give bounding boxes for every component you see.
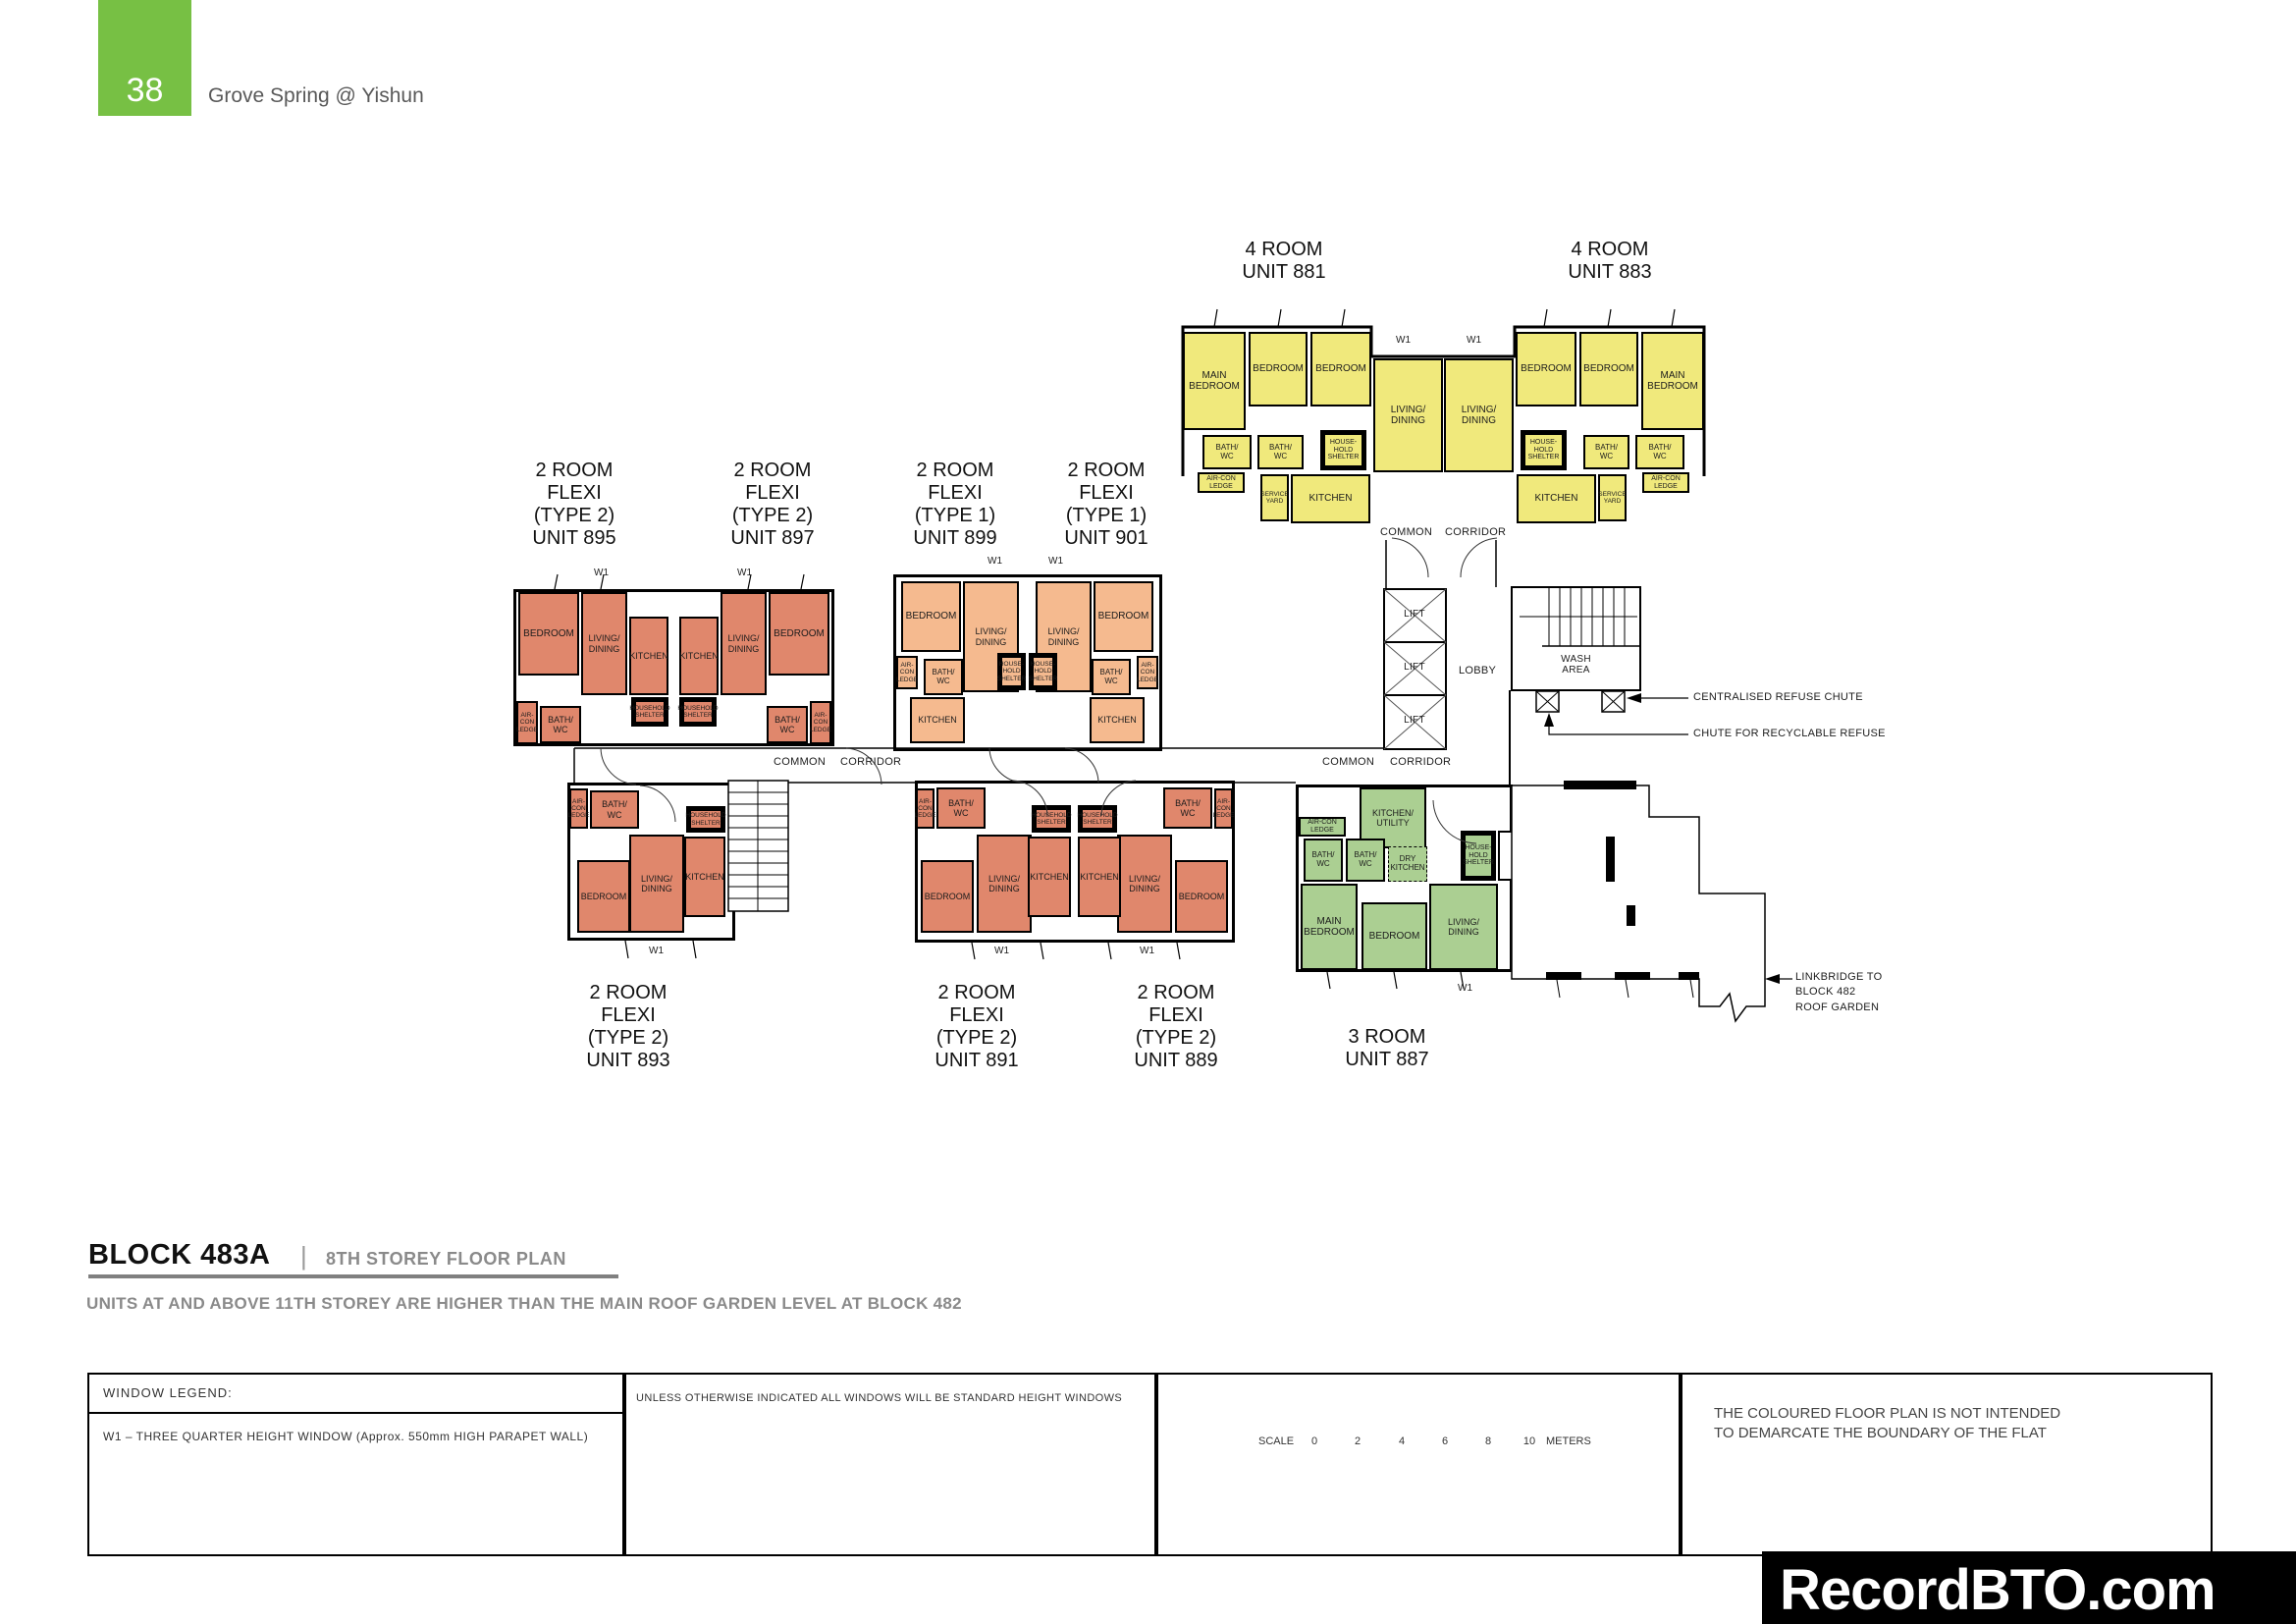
room-881-service-yard: SERVICE YARD xyxy=(1260,474,1289,521)
room-897-household-shelter: HOUSEHOLD SHELTER xyxy=(679,697,717,727)
stair-treads xyxy=(1549,587,1625,646)
roof-area-outline xyxy=(1512,785,1765,1021)
room-895-bedroom: BEDROOM xyxy=(518,592,579,676)
room-901-bath: BATH/ WC xyxy=(1092,659,1131,695)
w1-marker: W1 xyxy=(1458,983,1472,994)
linkbridge-label: LINKBRIDGE TO BLOCK 482 ROOF GARDEN xyxy=(1795,970,1882,1015)
storey-plan-title: 8TH STOREY FLOOR PLAN xyxy=(326,1249,566,1270)
room-901-kitchen: KITCHEN xyxy=(1090,697,1145,743)
corridor-label: CORRIDOR xyxy=(840,756,901,768)
unit-label-899: 2 ROOM FLEXI (TYPE 1) UNIT 899 xyxy=(877,460,1034,550)
unit-label-897: 2 ROOM FLEXI (TYPE 2) UNIT 897 xyxy=(694,460,851,550)
room-895-living-dining: LIVING/ DINING xyxy=(581,592,627,695)
scale-tick: 0 xyxy=(1305,1435,1324,1447)
room-899-aircon-ledge: AIR- CON LEDGE xyxy=(896,656,918,689)
unit-label-889: 2 ROOM FLEXI (TYPE 2) UNIT 889 xyxy=(1097,982,1255,1072)
room-881-bedroom-2: BEDROOM xyxy=(1310,332,1371,406)
arrow-up-icon xyxy=(1544,713,1554,727)
room-891-bath: BATH/ WC xyxy=(936,787,986,829)
windows-note: UNLESS OTHERWISE INDICATED ALL WINDOWS W… xyxy=(636,1392,1122,1404)
corridor-label: CORRIDOR xyxy=(1445,526,1506,538)
room-891-living-dining: LIVING/ DINING xyxy=(977,835,1032,933)
boundary-note: THE COLOURED FLOOR PLAN IS NOT INTENDED … xyxy=(1714,1404,2060,1444)
window-legend-title: WINDOW LEGEND: xyxy=(103,1385,233,1400)
corridor-label: CORRIDOR xyxy=(1390,756,1451,768)
lift-label: LIFT xyxy=(1390,662,1439,673)
w1-marker: W1 xyxy=(1048,556,1063,567)
room-893-kitchen: KITCHEN xyxy=(684,837,725,917)
room-887-living-dining: LIVING/ DINING xyxy=(1429,884,1498,970)
scale-box: SCALE 0 2 4 6 8 10 METERS xyxy=(1156,1373,1681,1556)
common-label: COMMON xyxy=(1322,756,1374,768)
room-899-bedroom: BEDROOM xyxy=(901,581,961,652)
windows-note-box: UNLESS OTHERWISE INDICATED ALL WINDOWS W… xyxy=(624,1373,1156,1556)
w1-marker: W1 xyxy=(994,946,1009,956)
room-883-aircon-ledge: AIR-CON LEDGE xyxy=(1642,472,1689,493)
room-891-bedroom: BEDROOM xyxy=(921,860,974,933)
unit-label-881: 4 ROOM UNIT 881 xyxy=(1205,239,1362,284)
room-895-kitchen: KITCHEN xyxy=(629,617,668,695)
room-887-bath-2: BATH/ WC xyxy=(1346,839,1385,882)
room-897-kitchen: KITCHEN xyxy=(679,617,719,695)
room-881-living-dining: LIVING/ DINING xyxy=(1373,358,1443,472)
leader-linkbridge xyxy=(1765,974,1792,984)
block-title: BLOCK 483A xyxy=(88,1239,271,1272)
room-889-bedroom: BEDROOM xyxy=(1175,860,1228,933)
w1-marker: W1 xyxy=(988,556,1002,567)
unit-label-901: 2 ROOM FLEXI (TYPE 1) UNIT 901 xyxy=(1028,460,1185,550)
room-883-bedroom-2: BEDROOM xyxy=(1516,332,1576,406)
leader-centralised-refuse xyxy=(1627,693,1688,703)
room-901-aircon-ledge: AIR- CON LEDGE xyxy=(1137,656,1158,689)
room-893-living-dining: LIVING/ DINING xyxy=(629,835,684,933)
room-889-bath: BATH/ WC xyxy=(1163,787,1212,829)
room-899-household-shelter: HOUSE- HOLD SHELTER xyxy=(997,653,1026,690)
room-881-main-bedroom: MAIN BEDROOM xyxy=(1183,332,1246,430)
floor-plan-page: 38 Grove Spring @ Yishun 4 ROOM UNIT 881… xyxy=(0,0,2296,1624)
room-891-kitchen: KITCHEN xyxy=(1028,837,1071,917)
room-883-household-shelter: HOUSE- HOLD SHELTER xyxy=(1521,430,1567,470)
room-881-household-shelter: HOUSE- HOLD SHELTER xyxy=(1320,430,1366,470)
room-883-service-yard: SERVICE YARD xyxy=(1598,474,1627,521)
page-number: 38 xyxy=(127,72,164,110)
room-891-household-shelter: HOUSEHOLD SHELTER xyxy=(1032,805,1071,833)
room-899-kitchen: KITCHEN xyxy=(910,697,965,743)
room-887-bath-1: BATH/ WC xyxy=(1304,839,1343,882)
room-897-aircon-ledge: AIR- CON LEDGE xyxy=(810,701,831,744)
unit-label-893: 2 ROOM FLEXI (TYPE 2) UNIT 893 xyxy=(550,982,707,1072)
room-893-household-shelter: HOUSEHOLD SHELTER xyxy=(686,806,725,833)
unit-label-895: 2 ROOM FLEXI (TYPE 2) UNIT 895 xyxy=(496,460,653,550)
storey-note: UNITS AT AND ABOVE 11TH STOREY ARE HIGHE… xyxy=(86,1294,962,1314)
scale-tick: 4 xyxy=(1392,1435,1412,1447)
scale-tick: 2 xyxy=(1348,1435,1367,1447)
room-883-bedroom-1: BEDROOM xyxy=(1579,332,1638,406)
room-895-bath: BATH/ WC xyxy=(540,706,581,743)
w1-marker: W1 xyxy=(1140,946,1154,956)
unit-label-887: 3 ROOM UNIT 887 xyxy=(1308,1026,1466,1071)
scale-unit: METERS xyxy=(1546,1435,1591,1447)
leader-recyclable-refuse xyxy=(1544,713,1688,734)
room-895-aircon-ledge: AIR- CON LEDGE xyxy=(516,701,538,744)
w1-marker: W1 xyxy=(594,568,609,578)
lobby-label: LOBBY xyxy=(1459,665,1496,677)
room-881-bath-1: BATH/ WC xyxy=(1202,435,1252,469)
room-887-void xyxy=(1498,831,1529,881)
room-887-dry-kitchen: DRY KITCHEN xyxy=(1388,846,1427,882)
room-883-main-bedroom: MAIN BEDROOM xyxy=(1641,332,1704,430)
title-separator: | xyxy=(300,1241,307,1272)
room-881-aircon-ledge: AIR-CON LEDGE xyxy=(1198,472,1245,493)
project-title: Grove Spring @ Yishun xyxy=(208,84,424,108)
room-881-bedroom-1: BEDROOM xyxy=(1249,332,1308,406)
w1-marker: W1 xyxy=(649,946,664,956)
room-889-kitchen: KITCHEN xyxy=(1078,837,1121,917)
watermark-site-link[interactable]: RecordBTO.com xyxy=(1762,1562,2216,1619)
room-889-aircon-ledge: AIR- CON LEDGE xyxy=(1214,788,1233,829)
room-893-bedroom: BEDROOM xyxy=(577,860,630,933)
window-legend-box: WINDOW LEGEND: W1 – THREE QUARTER HEIGHT… xyxy=(87,1373,624,1556)
stairs-wash-area xyxy=(1510,587,1640,785)
room-887-aircon-ledge: AIR-CON LEDGE xyxy=(1299,817,1346,837)
room-899-bath: BATH/ WC xyxy=(924,659,963,695)
common-label: COMMON xyxy=(1380,526,1432,538)
room-891-aircon-ledge: AIR- CON LEDGE xyxy=(916,788,934,829)
lift-label: LIFT xyxy=(1390,609,1439,620)
room-883-kitchen: KITCHEN xyxy=(1517,474,1596,523)
room-897-bath: BATH/ WC xyxy=(767,706,808,743)
room-887-main-bedroom: MAIN BEDROOM xyxy=(1301,884,1358,970)
stair-treads xyxy=(728,792,788,898)
room-897-bedroom: BEDROOM xyxy=(769,592,829,676)
scale-label: SCALE xyxy=(1258,1435,1294,1447)
room-893-aircon-ledge: AIR- CON LEDGE xyxy=(569,788,588,829)
w1-marker: W1 xyxy=(1467,335,1481,346)
w1-marker: W1 xyxy=(1396,335,1411,346)
centralised-refuse-label: CENTRALISED REFUSE CHUTE xyxy=(1693,691,1863,703)
page-number-badge: 38 xyxy=(98,0,191,116)
arrow-left-icon xyxy=(1765,974,1780,984)
stairs-893 xyxy=(728,781,788,911)
room-883-bath-1: BATH/ WC xyxy=(1635,435,1684,469)
common-label: COMMON xyxy=(774,756,826,768)
refuse-chutes xyxy=(1536,691,1625,712)
legend-divider xyxy=(89,1412,622,1414)
recyclable-refuse-label: CHUTE FOR RECYCLABLE REFUSE xyxy=(1693,728,1886,739)
watermark-banner: RecordBTO.com xyxy=(1762,1551,2296,1624)
room-881-kitchen: KITCHEN xyxy=(1291,474,1370,523)
room-887-household-shelter: HOUSE- HOLD SHELTER xyxy=(1461,831,1496,881)
room-901-household-shelter: HOUSE- HOLD SHELTER xyxy=(1029,653,1057,690)
title-underline xyxy=(88,1274,618,1278)
w1-description: W1 – THREE QUARTER HEIGHT WINDOW (Approx… xyxy=(103,1430,588,1443)
room-889-living-dining: LIVING/ DINING xyxy=(1117,835,1172,933)
lift-label: LIFT xyxy=(1390,715,1439,726)
scale-tick: 8 xyxy=(1478,1435,1498,1447)
room-901-bedroom: BEDROOM xyxy=(1094,581,1153,652)
wash-area-label: WASH AREA xyxy=(1549,654,1603,676)
boundary-note-box: THE COLOURED FLOOR PLAN IS NOT INTENDED … xyxy=(1681,1373,2213,1556)
w1-marker: W1 xyxy=(737,568,752,578)
room-881-bath-2: BATH/ WC xyxy=(1257,435,1304,469)
room-889-household-shelter: HOUSEHOLD SHELTER xyxy=(1078,805,1117,833)
scale-tick: 10 xyxy=(1520,1435,1539,1447)
room-883-living-dining: LIVING/ DINING xyxy=(1444,358,1514,472)
unit-label-883: 4 ROOM UNIT 883 xyxy=(1531,239,1688,284)
room-887-bedroom: BEDROOM xyxy=(1362,902,1427,970)
unit-label-891: 2 ROOM FLEXI (TYPE 2) UNIT 891 xyxy=(898,982,1055,1072)
room-883-bath-2: BATH/ WC xyxy=(1583,435,1629,469)
room-895-household-shelter: HOUSEHOLD SHELTER xyxy=(631,697,668,727)
room-897-living-dining: LIVING/ DINING xyxy=(721,592,767,695)
scale-tick: 6 xyxy=(1435,1435,1455,1447)
room-893-bath: BATH/ WC xyxy=(590,790,639,829)
arrow-left-icon xyxy=(1627,693,1641,703)
